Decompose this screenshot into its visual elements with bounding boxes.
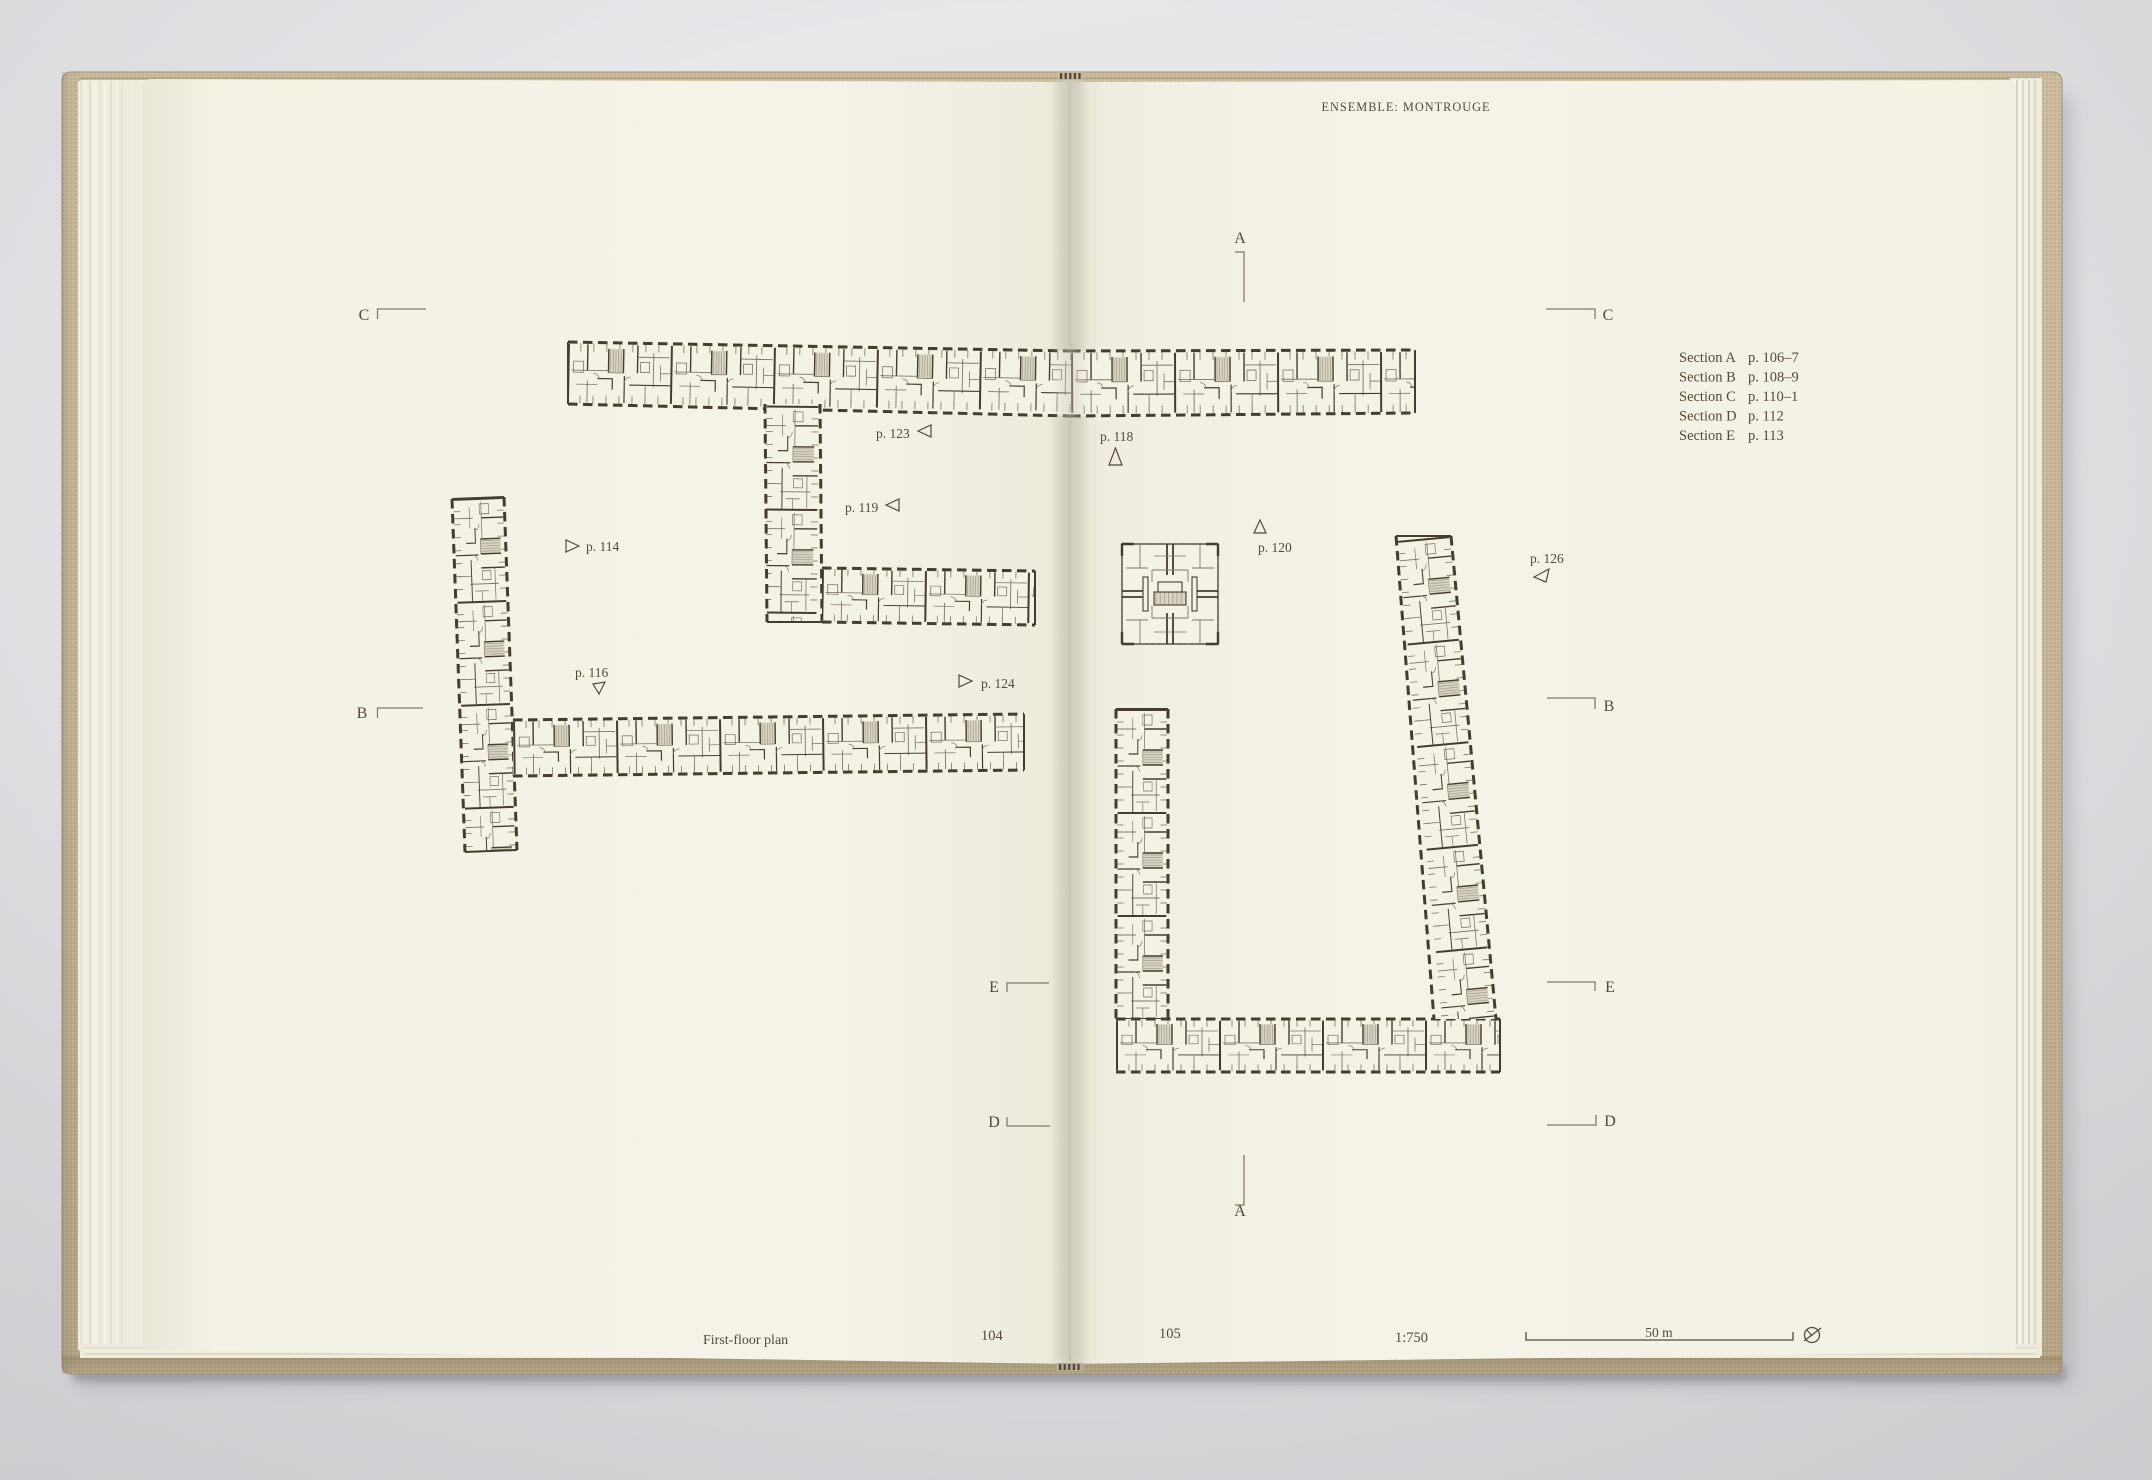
svg-text:p. 119: p. 119 xyxy=(845,500,878,515)
svg-text:Section B: Section B xyxy=(1679,370,1736,386)
svg-text:p. 116: p. 116 xyxy=(575,665,608,680)
svg-text:p. 126: p. 126 xyxy=(1530,551,1564,566)
svg-text:50 m: 50 m xyxy=(1645,1325,1673,1340)
svg-text:Section C: Section C xyxy=(1679,389,1736,405)
svg-text:1:750: 1:750 xyxy=(1395,1330,1428,1346)
svg-text:B: B xyxy=(357,705,368,722)
svg-text:E: E xyxy=(1605,979,1615,996)
svg-text:First-floor plan: First-floor plan xyxy=(703,1333,788,1348)
svg-text:p. 118: p. 118 xyxy=(1100,429,1133,444)
svg-text:Section A: Section A xyxy=(1679,350,1736,366)
svg-text:p. 112: p. 112 xyxy=(1748,409,1784,425)
svg-text:p. 113: p. 113 xyxy=(1748,428,1784,444)
svg-text:D: D xyxy=(1604,1113,1616,1130)
svg-text:p. 110–1: p. 110–1 xyxy=(1748,389,1798,405)
svg-text:A: A xyxy=(1234,230,1246,247)
svg-text:C: C xyxy=(359,307,370,324)
svg-text:104: 104 xyxy=(981,1328,1004,1344)
svg-text:p. 106–7: p. 106–7 xyxy=(1748,350,1799,366)
svg-text:p. 120: p. 120 xyxy=(1258,540,1292,555)
svg-text:Section E: Section E xyxy=(1679,428,1735,444)
svg-text:105: 105 xyxy=(1159,1326,1181,1342)
svg-text:Section D: Section D xyxy=(1679,409,1737,425)
svg-text:C: C xyxy=(1603,307,1614,324)
svg-text:p. 108–9: p. 108–9 xyxy=(1748,370,1799,386)
svg-text:p. 114: p. 114 xyxy=(586,539,619,554)
svg-text:B: B xyxy=(1604,698,1615,715)
svg-text:p. 124: p. 124 xyxy=(981,676,1015,691)
svg-text:ENSEMBLE: MONTROUGE: ENSEMBLE: MONTROUGE xyxy=(1322,100,1491,114)
svg-text:D: D xyxy=(988,1114,1000,1131)
svg-text:E: E xyxy=(989,979,999,996)
svg-text:p. 123: p. 123 xyxy=(876,426,910,441)
